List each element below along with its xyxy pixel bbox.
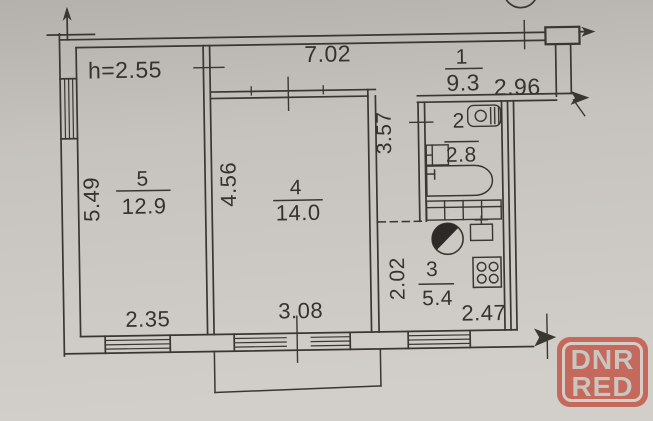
room-hall-number: 1 <box>456 46 469 69</box>
dim-room4-bottom: 3.08 <box>278 298 323 324</box>
kitchen-number: 3 <box>426 258 439 281</box>
kitchen-corridor-dashed-boundary <box>378 221 426 222</box>
room5-number: 5 <box>136 168 149 191</box>
bath-area: 2.8 <box>446 143 477 166</box>
watermark-line2: RED <box>571 371 633 402</box>
watermark-badge: DNR RED <box>557 337 648 407</box>
room5-area: 12.9 <box>121 193 166 219</box>
room4-number: 4 <box>290 176 303 199</box>
dim-entry: 2.96 <box>494 73 541 100</box>
dim-room4-side: 4.56 <box>215 162 241 207</box>
dim-kitchen-bottom: 2.47 <box>461 300 506 326</box>
room4-area: 14.0 <box>276 200 321 226</box>
room-hall-area: 9.3 <box>446 69 480 96</box>
dim-corridor-side: 3.57 <box>373 111 397 154</box>
dim-kitchen-side: 2.02 <box>386 257 410 300</box>
kitchen-area: 5.4 <box>422 287 453 310</box>
floor-plan-svg: h=2.55 7.02 1 9.3 2.96 3.57 4.56 5.49 2.… <box>0 0 653 421</box>
dim-hall-top: 7.02 <box>304 40 351 67</box>
dim-room5-side: 5.49 <box>79 177 105 222</box>
floor-plan-scan: h=2.55 7.02 1 9.3 2.96 3.57 4.56 5.49 2.… <box>0 0 653 421</box>
bath-number: 2 <box>453 110 466 133</box>
dim-room5-bottom: 2.35 <box>125 306 170 332</box>
ceiling-height-label: h=2.55 <box>88 56 162 83</box>
